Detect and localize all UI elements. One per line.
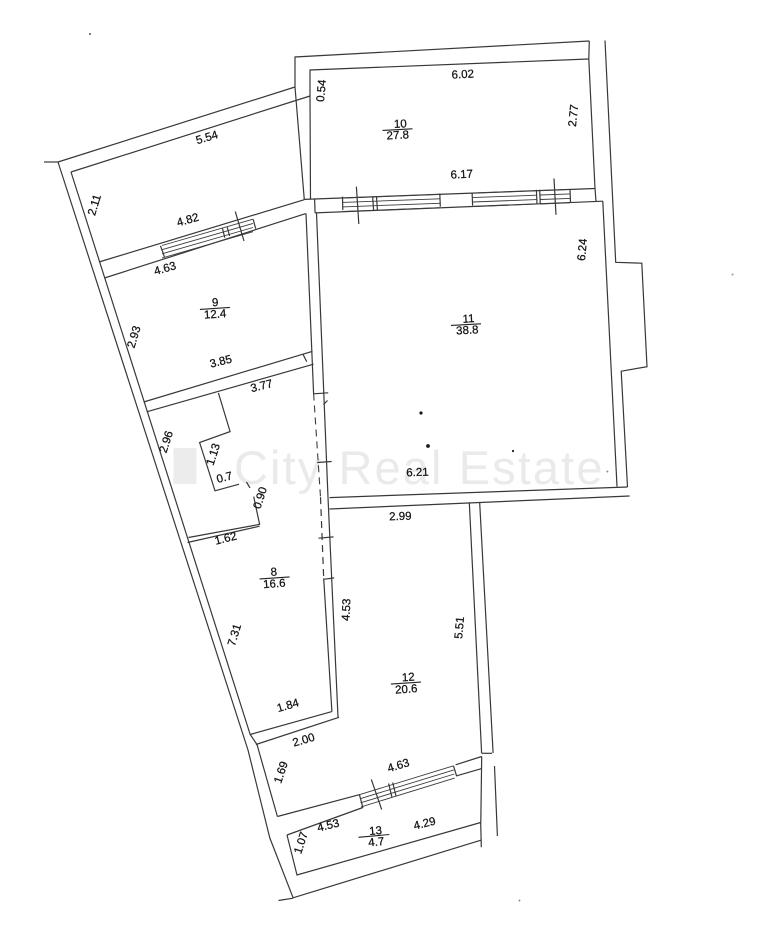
svg-text:27.8: 27.8 xyxy=(386,129,409,142)
svg-text:6.17: 6.17 xyxy=(450,168,473,181)
svg-text:5.51: 5.51 xyxy=(453,616,467,639)
svg-text:2.99: 2.99 xyxy=(389,511,412,524)
svg-text:6.24: 6.24 xyxy=(576,237,590,261)
svg-text:8: 8 xyxy=(270,566,277,578)
svg-text:4.53: 4.53 xyxy=(340,598,353,621)
svg-text:16.6: 16.6 xyxy=(263,578,286,592)
svg-text:4.7: 4.7 xyxy=(368,836,385,849)
svg-text:20.6: 20.6 xyxy=(395,683,418,697)
svg-text:6.02: 6.02 xyxy=(451,68,474,81)
svg-text:38.8: 38.8 xyxy=(456,324,479,337)
svg-text:0.54: 0.54 xyxy=(315,78,329,102)
svg-text:6.21: 6.21 xyxy=(406,467,429,480)
svg-text:9: 9 xyxy=(212,297,219,309)
svg-text:12.4: 12.4 xyxy=(204,308,228,322)
svg-text:2.77: 2.77 xyxy=(567,104,581,128)
